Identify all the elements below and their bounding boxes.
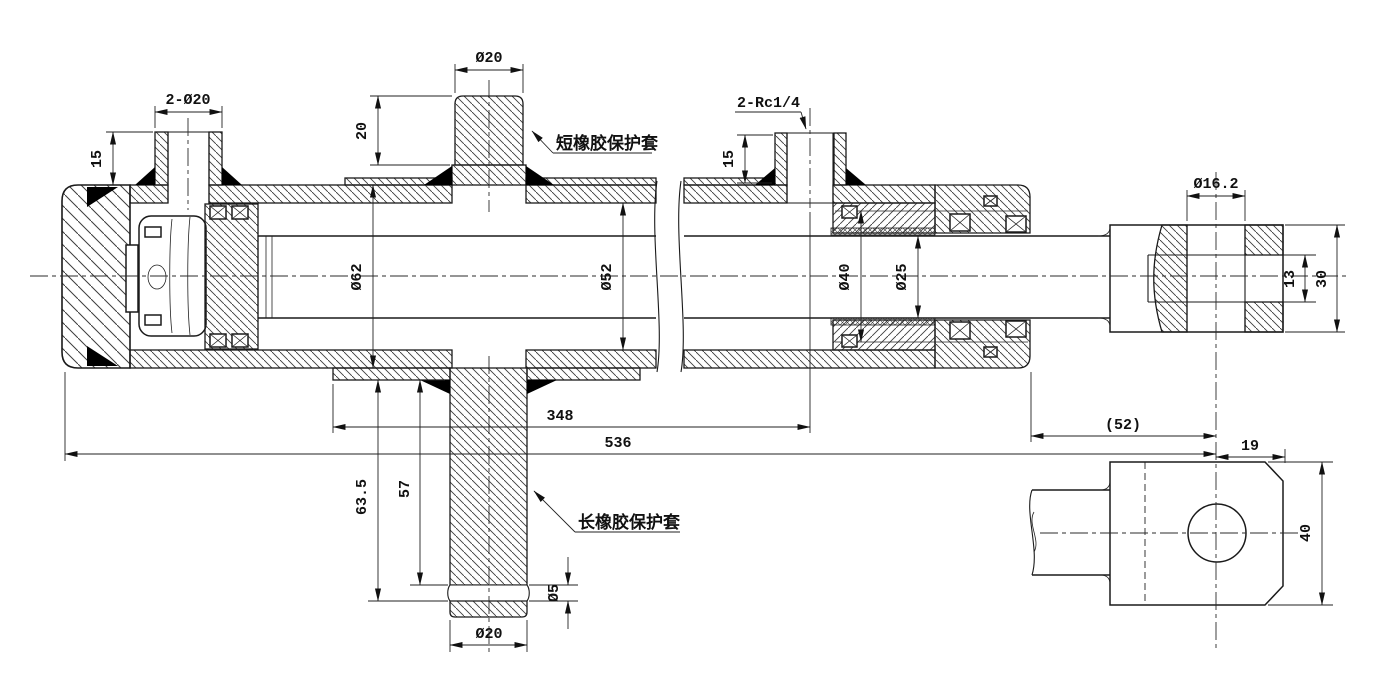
dim-total-length: 536: [604, 435, 631, 452]
dim-clevis-front-height: 30: [1314, 270, 1331, 288]
dim-tube-length: 57: [397, 480, 414, 498]
piston-seal: [232, 334, 248, 347]
dim-rod-end: 19: [1241, 438, 1259, 455]
rear-end-cap: [62, 185, 130, 368]
dim-slot-width: 13: [1282, 270, 1299, 288]
label-short-rubber-sleeve: 短橡胶保护套: [556, 133, 659, 153]
dim-guide-od: Ø40: [837, 263, 854, 290]
dim-mid-sleeve-height: 20: [354, 122, 371, 140]
rod-seal: [950, 322, 970, 339]
piston-assembly: [126, 204, 258, 349]
dim-right-port: 2-Rc1/4: [737, 95, 800, 112]
dim-groove: Ø5: [546, 584, 563, 602]
dim-left-port-height: 15: [89, 150, 106, 168]
dim-rod-dia: Ø25: [894, 263, 911, 290]
dim-tube-total: 63.5: [354, 479, 371, 515]
clevis-front-view: [1098, 225, 1283, 332]
dim-barrel-od: Ø62: [349, 263, 366, 290]
dim-stroke: (52): [1105, 417, 1141, 434]
hydraulic-cylinder-drawing: 2-Ø20 15 Ø20 20 2-Rc1/4 15 Ø62 Ø52 Ø40 Ø…: [0, 0, 1394, 691]
rod-seal: [984, 347, 997, 357]
rod-seal: [1006, 216, 1026, 232]
piston-seal: [210, 334, 226, 347]
rod-seal: [1006, 321, 1026, 337]
dim-clevis-side-height: 40: [1298, 524, 1315, 542]
label-long-rubber-sleeve: 长橡胶保护套: [578, 512, 681, 532]
piston-seal: [210, 206, 226, 219]
dim-mid-port: Ø20: [475, 50, 502, 67]
rod-seal: [984, 196, 997, 206]
rod-seal: [842, 206, 857, 218]
rod-seal: [842, 335, 857, 347]
piston-seal: [232, 206, 248, 219]
dim-pin-hole: Ø16.2: [1193, 176, 1238, 193]
drawing-canvas: 2-Ø20 15 Ø20 20 2-Rc1/4 15 Ø62 Ø52 Ø40 Ø…: [0, 0, 1394, 691]
rod-seal: [950, 214, 970, 231]
dim-bore: Ø52: [599, 263, 616, 290]
dim-right-port-height: 15: [721, 150, 738, 168]
dim-bottom-port: Ø20: [475, 626, 502, 643]
dim-body-length: 348: [546, 408, 573, 425]
dim-left-port: 2-Ø20: [165, 92, 210, 109]
